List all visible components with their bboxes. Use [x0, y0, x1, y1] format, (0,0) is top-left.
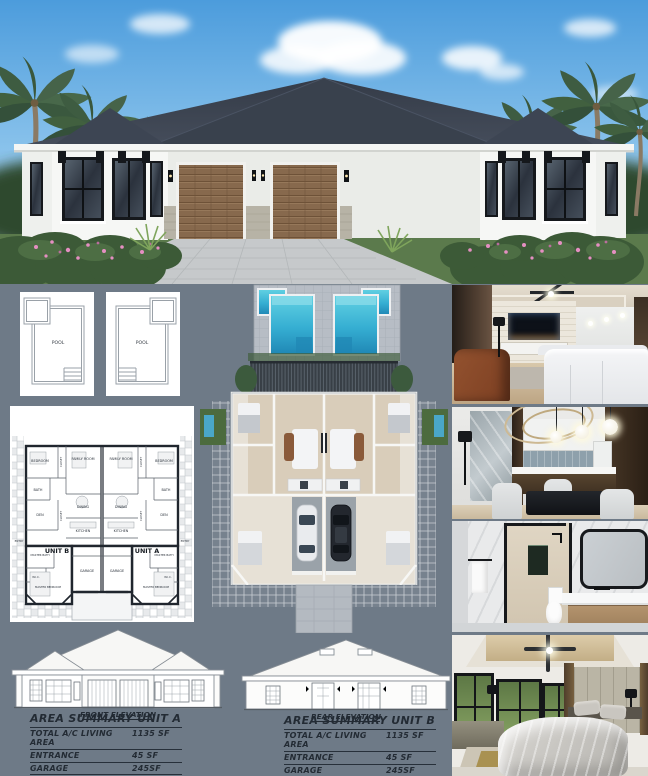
globe-pendant: [575, 425, 589, 439]
interior-photo-bathroom: [452, 521, 648, 632]
exterior-render: [0, 0, 648, 284]
globe-pendant: [550, 431, 562, 443]
white-car: [297, 505, 317, 561]
privacy-fence: [235, 353, 413, 395]
svg-text:KITCHEN: KITCHEN: [114, 529, 129, 533]
area-summary-title: AREA SUMMARY UNIT A: [30, 712, 182, 725]
vanity-counter: [562, 593, 648, 605]
floor-plan-3d: [196, 283, 452, 633]
leather-armchair: [454, 349, 510, 401]
dining-table: [526, 491, 604, 515]
floor-plan-2d: BEDROOM CLOSET FAMILY ROOM BATH DEN DINI…: [10, 406, 194, 622]
table-row: ENTRANCE 45 SF: [30, 750, 182, 763]
svg-text:DEN: DEN: [36, 513, 44, 517]
svg-text:GARAGE: GARAGE: [80, 569, 94, 573]
pendant-light: [620, 313, 625, 318]
svg-text:W.I.C.: W.I.C.: [32, 575, 40, 579]
faucet: [594, 587, 610, 590]
area-summary-title: AREA SUMMARY UNIT B: [284, 714, 436, 727]
globe-pendant: [602, 419, 618, 435]
pendant-light: [588, 321, 593, 326]
area-summary-unit-a: AREA SUMMARY UNIT A TOTAL A/C LIVING ARE…: [30, 712, 182, 776]
svg-text:BEDROOM: BEDROOM: [31, 459, 49, 463]
black-car: [331, 505, 351, 561]
dresser: [452, 721, 504, 749]
svg-text:BATH: BATH: [161, 488, 170, 492]
svg-text:KITCHEN: KITCHEN: [76, 529, 91, 533]
svg-text:DINING: DINING: [77, 505, 90, 509]
pool-plan-unit-a: POOL: [106, 292, 180, 396]
svg-text:GARAGE: GARAGE: [110, 569, 124, 573]
svg-text:W.I.C.: W.I.C.: [164, 575, 172, 579]
garage-door-right: [270, 162, 340, 239]
garage-door-left: [176, 162, 246, 239]
floor-lamp: [464, 441, 466, 485]
interior-photo-kitchen: [452, 407, 648, 519]
tv: [508, 313, 560, 340]
pool-label: POOL: [136, 340, 149, 346]
table-row: TOTAL A/C LIVING AREA 1135 SF: [30, 728, 182, 750]
svg-text:CLOSET: CLOSET: [139, 457, 143, 467]
svg-text:DINING: DINING: [115, 505, 128, 509]
svg-text:CLOSET: CLOSET: [139, 511, 143, 521]
svg-text:BATH: BATH: [33, 488, 42, 492]
pendant-light: [604, 317, 609, 322]
unit-b-title: UNIT B: [45, 547, 69, 555]
svg-text:ENTRY: ENTRY: [181, 539, 190, 543]
svg-text:CLOSET: CLOSET: [59, 511, 63, 521]
svg-text:MASTER BEDROOM: MASTER BEDROOM: [35, 585, 62, 589]
shower-niche: [528, 545, 548, 575]
table-lamp: [492, 693, 494, 715]
table-row: TOTAL A/C LIVING AREA 1135 SF: [284, 730, 436, 752]
interior-photo-bedroom: [452, 635, 648, 776]
paver-border: [12, 436, 24, 608]
svg-text:MASTER BEDROOM: MASTER BEDROOM: [143, 585, 170, 589]
vanity-mirror: [580, 529, 648, 589]
table-row: GARAGE 245SF: [284, 765, 436, 776]
front-elevation: FRONT ELEVATION: [4, 624, 232, 724]
pool-plan-unit-b: POOL: [20, 292, 94, 396]
floor-lamp: [498, 325, 500, 357]
towel: [472, 561, 488, 593]
presentation-board: POOL POOL: [0, 0, 648, 776]
fascia: [14, 144, 634, 150]
table-row: GARAGE 245SF: [30, 763, 182, 776]
rear-elevation: REAR ELEVATION: [232, 636, 460, 724]
unit-a-title: UNIT A: [135, 547, 159, 555]
svg-text:FAMILY ROOM: FAMILY ROOM: [109, 457, 132, 461]
pool-label: POOL: [52, 340, 65, 346]
island-counter: [512, 467, 616, 474]
svg-text:CLOSET: CLOSET: [59, 457, 63, 467]
svg-text:FAMILY ROOM: FAMILY ROOM: [71, 457, 94, 461]
area-summary-unit-b: AREA SUMMARY UNIT B TOTAL A/C LIVING ARE…: [284, 714, 436, 776]
building-3d: [232, 393, 416, 585]
sectional-sofa: [544, 349, 648, 404]
dining-chair: [492, 483, 522, 519]
table-row: ENTRANCE 45 SF: [284, 752, 436, 765]
svg-text:DEN: DEN: [160, 513, 168, 517]
svg-text:BEDROOM: BEDROOM: [155, 459, 173, 463]
interior-photo-living-room: [452, 285, 648, 404]
svg-text:ENTRY: ENTRY: [15, 539, 24, 543]
dining-chair: [600, 489, 634, 519]
